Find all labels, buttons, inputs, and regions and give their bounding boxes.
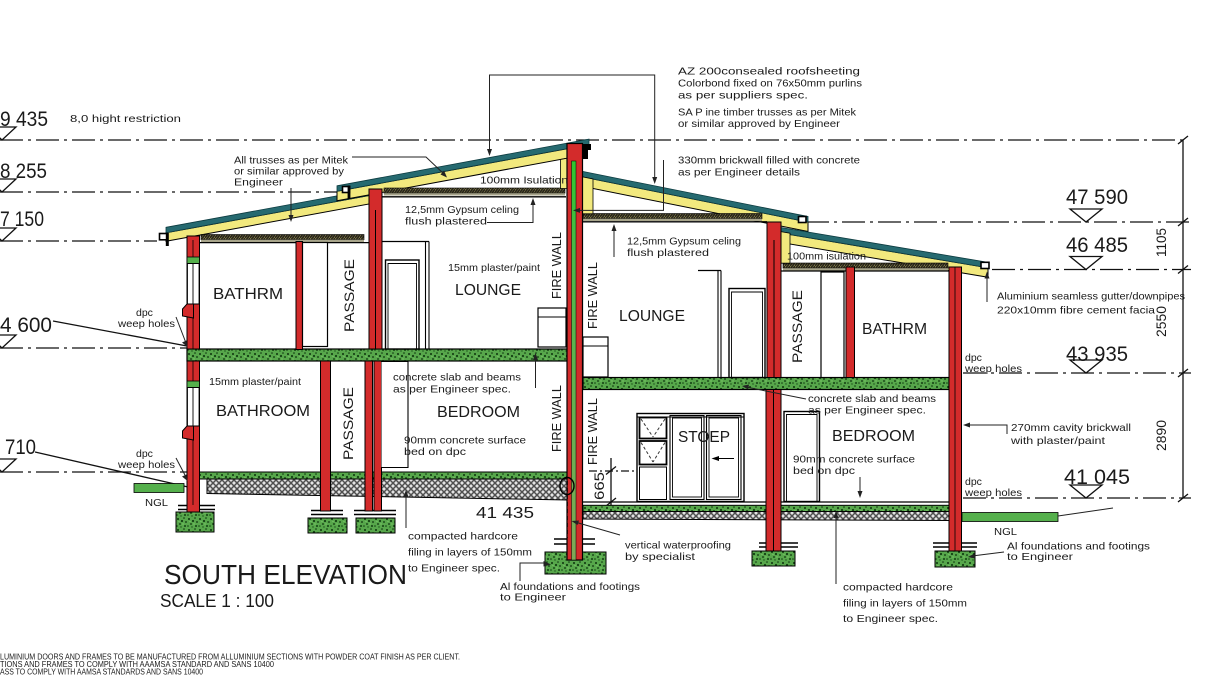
svg-text:665: 665 bbox=[592, 472, 607, 500]
svg-text:46 485: 46 485 bbox=[1066, 234, 1128, 257]
svg-text:BEDROOM: BEDROOM bbox=[437, 404, 520, 421]
svg-text:12,5mm Gypsum celing: 12,5mm Gypsum celing bbox=[405, 204, 519, 216]
svg-text:STOEP: STOEP bbox=[678, 429, 730, 446]
svg-text:vertical waterproofing: vertical waterproofing bbox=[625, 540, 731, 552]
svg-text:15mm plaster/paint: 15mm plaster/paint bbox=[209, 376, 301, 388]
svg-text:Colorbond fixed on 76x50mm pur: Colorbond fixed on 76x50mm purlins bbox=[678, 78, 862, 90]
svg-text:12,5mm Gypsum celing: 12,5mm Gypsum celing bbox=[627, 236, 741, 248]
svg-text:100mm Isulation: 100mm Isulation bbox=[480, 175, 568, 187]
svg-text:weep holes: weep holes bbox=[964, 487, 1022, 499]
svg-text:90mm concrete surface: 90mm concrete surface bbox=[404, 435, 526, 447]
svg-text:PASSAGE: PASSAGE bbox=[340, 387, 356, 460]
svg-text:NGL: NGL bbox=[145, 498, 168, 509]
svg-text:100mm isulation: 100mm isulation bbox=[787, 251, 866, 263]
svg-text:90mm concrete surface: 90mm concrete surface bbox=[793, 454, 915, 466]
svg-text:SCALE 1 : 100: SCALE 1 : 100 bbox=[160, 590, 274, 611]
svg-text:bed on dpc: bed on dpc bbox=[793, 465, 855, 477]
svg-text:4 600: 4 600 bbox=[0, 314, 52, 337]
svg-text:to Engineer: to Engineer bbox=[1007, 551, 1074, 563]
svg-text:as per suppliers spec.: as per suppliers spec. bbox=[678, 90, 808, 102]
svg-text:220x10mm fibre cement facia: 220x10mm fibre cement facia bbox=[997, 305, 1155, 317]
svg-text:Aluminium seamless gutter/down: Aluminium seamless gutter/downpipes bbox=[997, 291, 1185, 303]
svg-text:LOUNGE: LOUNGE bbox=[619, 308, 685, 325]
svg-text:SOUTH ELEVATION: SOUTH ELEVATION bbox=[164, 559, 407, 590]
svg-text:BATHRM: BATHRM bbox=[862, 321, 927, 338]
svg-text:FIRE WALL: FIRE WALL bbox=[586, 262, 600, 329]
svg-text:NGL: NGL bbox=[994, 527, 1017, 538]
svg-text:710: 710 bbox=[5, 436, 36, 459]
svg-text:weep holes: weep holes bbox=[964, 363, 1022, 375]
svg-text:or similar approved by Enginee: or similar approved by Engineer bbox=[678, 118, 841, 130]
svg-text:2890: 2890 bbox=[1154, 420, 1169, 451]
svg-text:ASS TO COMPLY WITH AAMSA STAND: ASS TO COMPLY WITH AAMSA STANDARDS AND S… bbox=[0, 668, 204, 675]
svg-text:15mm plaster/paint: 15mm plaster/paint bbox=[448, 262, 540, 274]
svg-text:LOUNGE: LOUNGE bbox=[455, 282, 521, 299]
svg-text:concrete slab and beams: concrete slab and beams bbox=[393, 372, 521, 384]
svg-text:filing in layers of 150mm: filing in layers of 150mm bbox=[408, 547, 532, 559]
svg-text:compacted hardcore: compacted hardcore bbox=[408, 531, 518, 543]
svg-text:FIRE WALL: FIRE WALL bbox=[550, 385, 564, 452]
svg-text:to Engineer spec.: to Engineer spec. bbox=[843, 613, 938, 625]
svg-text:47 590: 47 590 bbox=[1066, 186, 1128, 209]
svg-text:BEDROOM: BEDROOM bbox=[832, 428, 915, 445]
svg-text:SA P ine timber trusses as per: SA P ine timber trusses as per Mitek bbox=[678, 107, 857, 119]
svg-text:as per Engineer spec.: as per Engineer spec. bbox=[808, 405, 926, 417]
svg-text:bed on dpc: bed on dpc bbox=[404, 446, 466, 458]
svg-text:43 935: 43 935 bbox=[1066, 343, 1128, 366]
svg-text:compacted hardcore: compacted hardcore bbox=[843, 582, 953, 594]
svg-text:FIRE WALL: FIRE WALL bbox=[550, 232, 564, 299]
svg-text:concrete slab and beams: concrete slab and beams bbox=[808, 393, 936, 405]
svg-text:as per Engineer details: as per Engineer details bbox=[678, 167, 800, 179]
svg-text:270mm cavity brickwall: 270mm cavity brickwall bbox=[1011, 422, 1131, 434]
svg-text:flush plastered: flush plastered bbox=[627, 247, 709, 259]
svg-text:BATHRM: BATHRM bbox=[213, 286, 283, 303]
svg-text:as per Engineer spec.: as per Engineer spec. bbox=[393, 384, 511, 396]
svg-text:filing in layers of 150mm: filing in layers of 150mm bbox=[843, 598, 967, 610]
svg-text:PASSAGE: PASSAGE bbox=[789, 290, 805, 363]
svg-text:Engineer: Engineer bbox=[234, 177, 284, 189]
svg-text:2550: 2550 bbox=[1154, 306, 1169, 337]
svg-text:to Engineer: to Engineer bbox=[500, 592, 567, 604]
svg-text:PASSAGE: PASSAGE bbox=[341, 259, 357, 332]
svg-text:BATHROOM: BATHROOM bbox=[216, 403, 310, 420]
svg-text:weep holes: weep holes bbox=[117, 318, 175, 330]
svg-text:AZ 200consealed roofsheeting: AZ 200consealed roofsheeting bbox=[678, 66, 860, 78]
svg-text:FIRE WALL: FIRE WALL bbox=[586, 398, 600, 465]
svg-text:with plaster/paint: with plaster/paint bbox=[1010, 435, 1105, 447]
svg-text:to Engineer spec.: to Engineer spec. bbox=[408, 563, 500, 575]
svg-text:by specialist: by specialist bbox=[625, 551, 695, 563]
svg-text:flush plastered: flush plastered bbox=[405, 216, 487, 228]
svg-text:330mm brickwall filled with co: 330mm brickwall filled with concrete bbox=[678, 155, 860, 167]
svg-text:8,0 hight restriction: 8,0 hight restriction bbox=[70, 113, 181, 125]
svg-text:1105: 1105 bbox=[1154, 228, 1169, 257]
svg-text:41 435: 41 435 bbox=[476, 505, 534, 522]
svg-text:weep holes: weep holes bbox=[117, 459, 175, 471]
